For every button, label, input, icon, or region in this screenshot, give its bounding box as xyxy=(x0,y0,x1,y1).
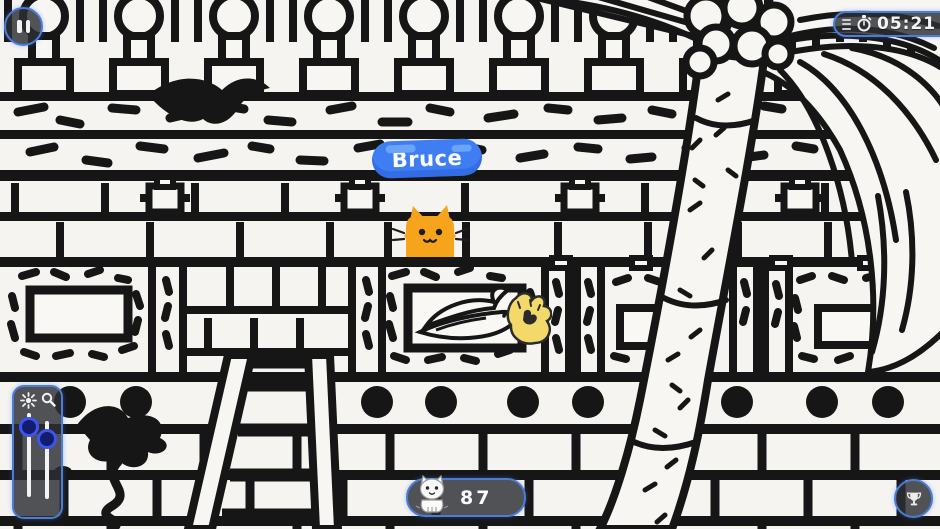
frames-band xyxy=(0,258,940,382)
yellow-paw-icon xyxy=(502,290,552,348)
sliders-panel xyxy=(12,385,63,519)
cat-icon xyxy=(414,474,450,514)
found-cat-bruce[interactable] xyxy=(392,202,468,257)
timer-value: 05:21 xyxy=(877,14,936,34)
label-sparkle-dot xyxy=(350,152,360,158)
magnifier-icon xyxy=(41,392,56,407)
pause-icon xyxy=(17,20,30,33)
game-screen: Bruce xyxy=(0,0,940,529)
label-sparkle-dot xyxy=(486,149,498,156)
brightness-slider-knob[interactable] xyxy=(19,417,39,437)
zoom-slider-knob[interactable] xyxy=(37,429,57,449)
pause-button[interactable] xyxy=(4,7,43,46)
trophy-button[interactable] xyxy=(894,479,933,518)
menu-lines-icon xyxy=(842,19,851,30)
cat-counter-pill[interactable]: 87 xyxy=(406,478,526,517)
label-highlight xyxy=(386,144,416,153)
brightness-icon xyxy=(20,392,37,409)
stopwatch-icon xyxy=(856,15,872,33)
label-highlight xyxy=(452,144,472,152)
timer-pill[interactable]: 05:21 02 xyxy=(833,11,940,37)
cats-found-count: 87 xyxy=(460,487,492,509)
trophy-icon xyxy=(905,490,923,508)
hidden-cats-scene[interactable] xyxy=(0,0,940,529)
orange-cat-icon xyxy=(392,202,468,257)
yellow-paw-collectible[interactable] xyxy=(502,290,552,348)
found-cat-name-label: Bruce xyxy=(371,138,482,179)
